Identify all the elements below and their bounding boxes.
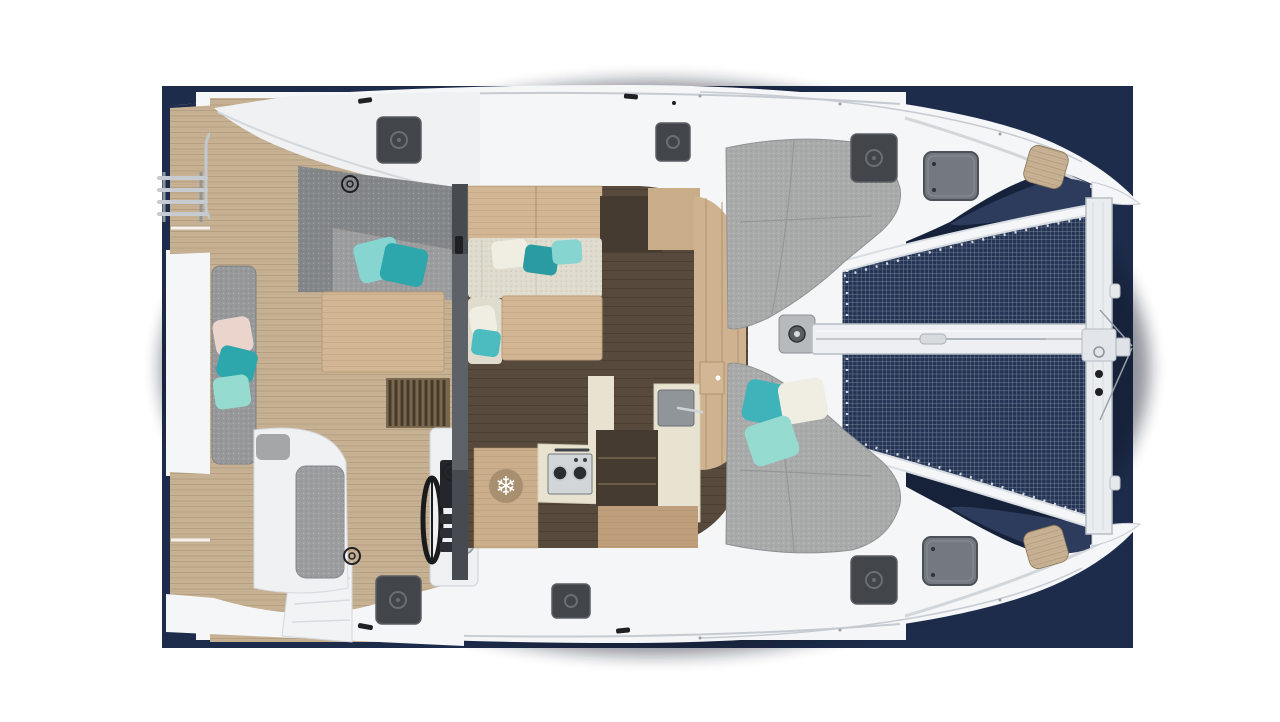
deck-screw-6: [999, 599, 1002, 602]
hatch-top-forward: [851, 134, 897, 182]
stove-burner-right: [573, 466, 587, 480]
aft-shelving: [596, 430, 658, 506]
deck-screw-4: [699, 637, 702, 640]
portlight-latch-2: [931, 573, 935, 577]
portlight-bottom: [923, 537, 977, 585]
deck-screw-5: [839, 629, 842, 632]
cockpit-table-grain: [322, 292, 444, 372]
ring-outer: [342, 176, 358, 192]
stove-knob-1: [574, 458, 578, 462]
windlass-hub: [794, 331, 800, 337]
hatch-bottom-aft: [376, 576, 421, 624]
chaise-pillow-teal: [470, 328, 501, 358]
crossbeam-tab-top: [1110, 284, 1120, 298]
hatch-dot: [872, 578, 876, 582]
divider-dark-bottom: [452, 470, 468, 580]
shelf-box-handle: [716, 376, 721, 381]
hatch-top-mid: [656, 123, 690, 161]
stove: [548, 450, 592, 494]
portlight-latch-2: [932, 188, 936, 192]
saloon-pillow-light-teal: [551, 239, 583, 265]
aft-lounge-cushion-texture: [296, 466, 344, 578]
crossbeam-center-plate: [1082, 329, 1116, 361]
hatch-dot: [397, 138, 401, 142]
stern-transom: [166, 250, 214, 476]
saloon-divider: [452, 184, 468, 580]
hatch-bottom-mid: [552, 584, 590, 618]
portlight-glass: [924, 152, 978, 200]
deck-bolt-top: [672, 101, 676, 105]
snowflake-icon: ❄: [495, 472, 517, 502]
deck-screw-2: [839, 103, 842, 106]
portlight-glass: [923, 537, 977, 585]
door-handle: [455, 236, 463, 254]
deck-ring-aft-top: [342, 176, 358, 192]
crossbeam-bolt-2: [1095, 388, 1103, 396]
hatch-lid: [656, 123, 690, 161]
portlight-top: [924, 152, 978, 200]
aft-lounge-headrest: [256, 434, 290, 460]
hatch-dot: [396, 598, 400, 602]
locker-wood-panel: [648, 188, 700, 250]
catamaran-deck-plan: ❄: [0, 0, 1280, 722]
cabin-door: [658, 390, 694, 426]
hatch-dot: [872, 156, 876, 160]
crossbeam-bolt-1: [1095, 370, 1103, 378]
saloon-table-grain: [502, 296, 602, 360]
portlight-latch-1: [932, 162, 936, 166]
stove-knob-2: [583, 458, 587, 462]
deck-screw-3: [999, 133, 1002, 136]
aft-bench-pillow-mint: [212, 374, 252, 411]
hatch-bottom-forward: [851, 556, 897, 604]
hatch-top-aft: [377, 117, 421, 163]
beam-slider: [920, 334, 946, 344]
stove-burner-left: [553, 466, 567, 480]
portlight-latch-1: [931, 547, 935, 551]
saloon: ❄: [468, 186, 748, 548]
deck-screw-1: [699, 95, 702, 98]
galley-wood-floor-grain: [598, 506, 698, 548]
hatch-lid: [552, 584, 590, 618]
crossbeam-bar: [1086, 198, 1112, 534]
galley-cabinets-top-grain: [468, 186, 602, 240]
forestay-chainplate: [1116, 338, 1130, 356]
crossbeam-tab-bottom: [1110, 476, 1120, 490]
